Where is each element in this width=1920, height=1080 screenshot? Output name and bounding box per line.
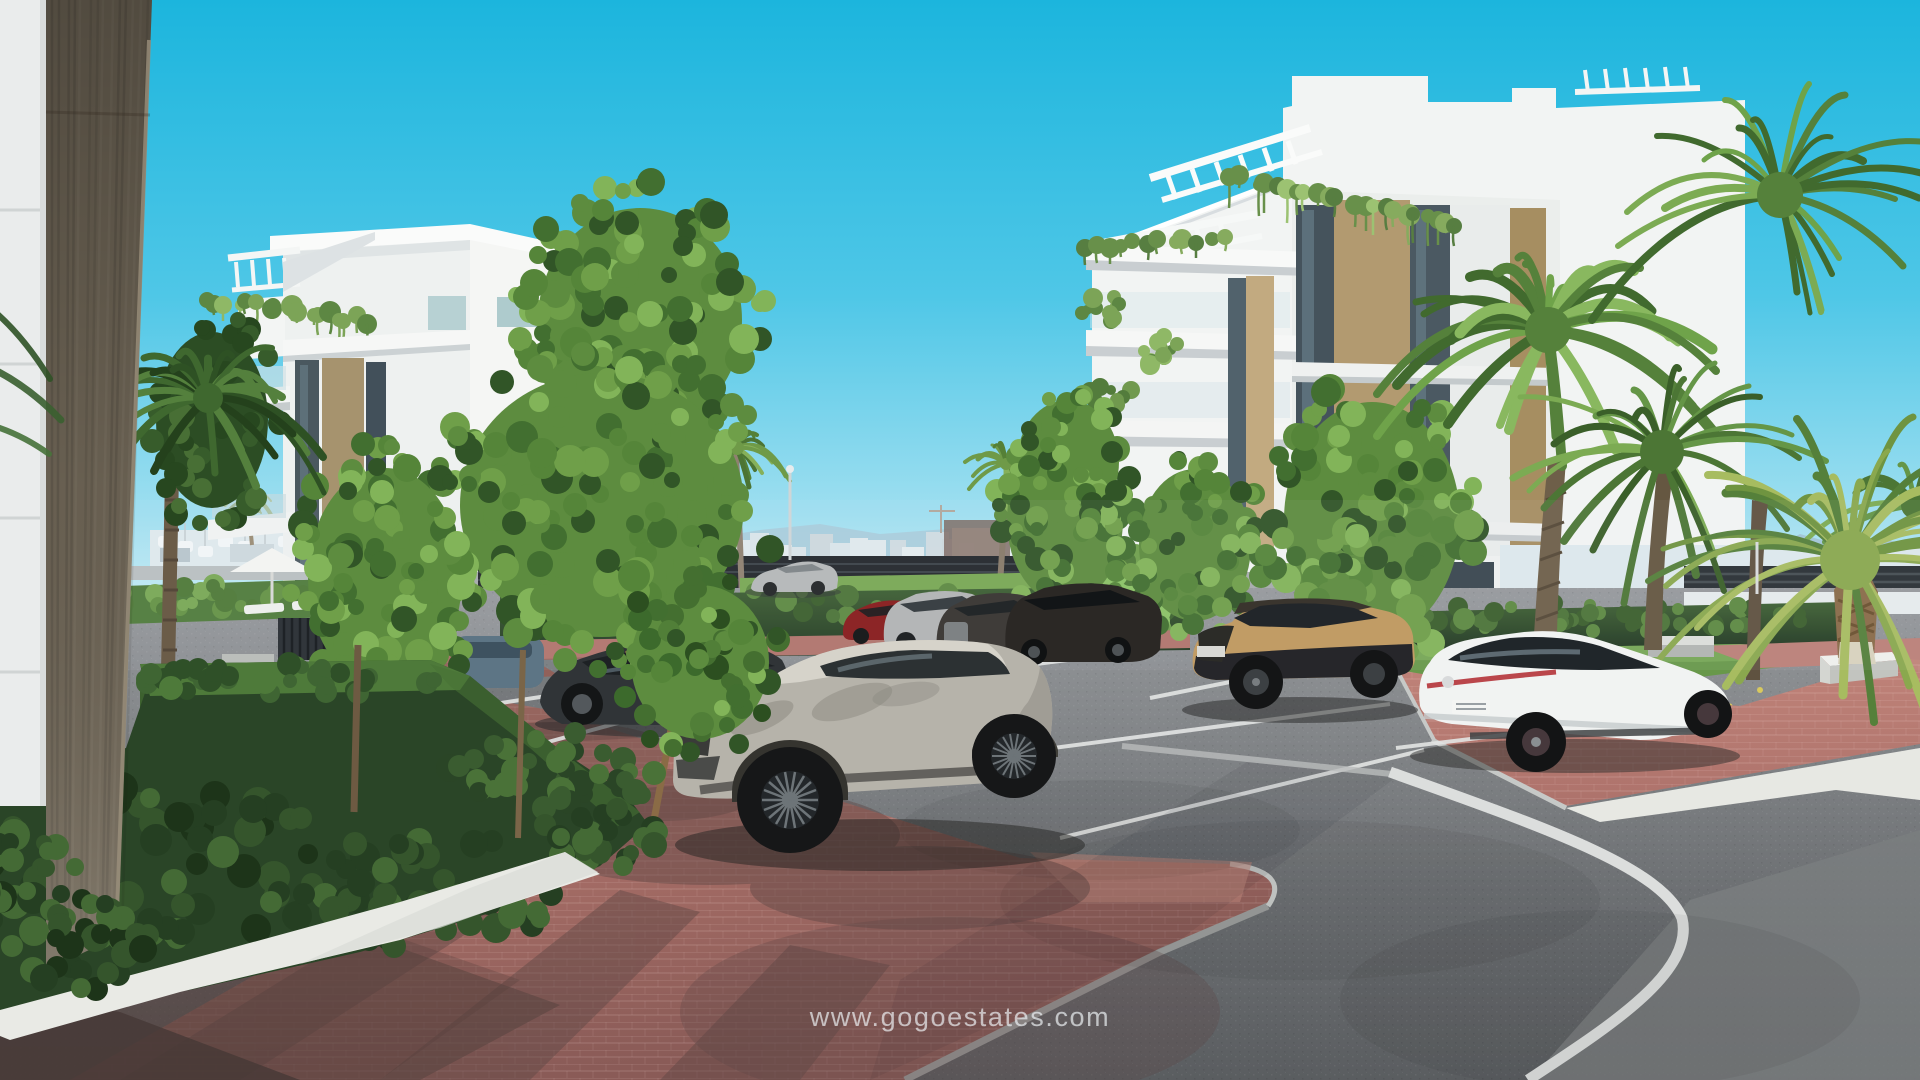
svg-text:www.gogoestates.com: www.gogoestates.com: [809, 1002, 1111, 1032]
